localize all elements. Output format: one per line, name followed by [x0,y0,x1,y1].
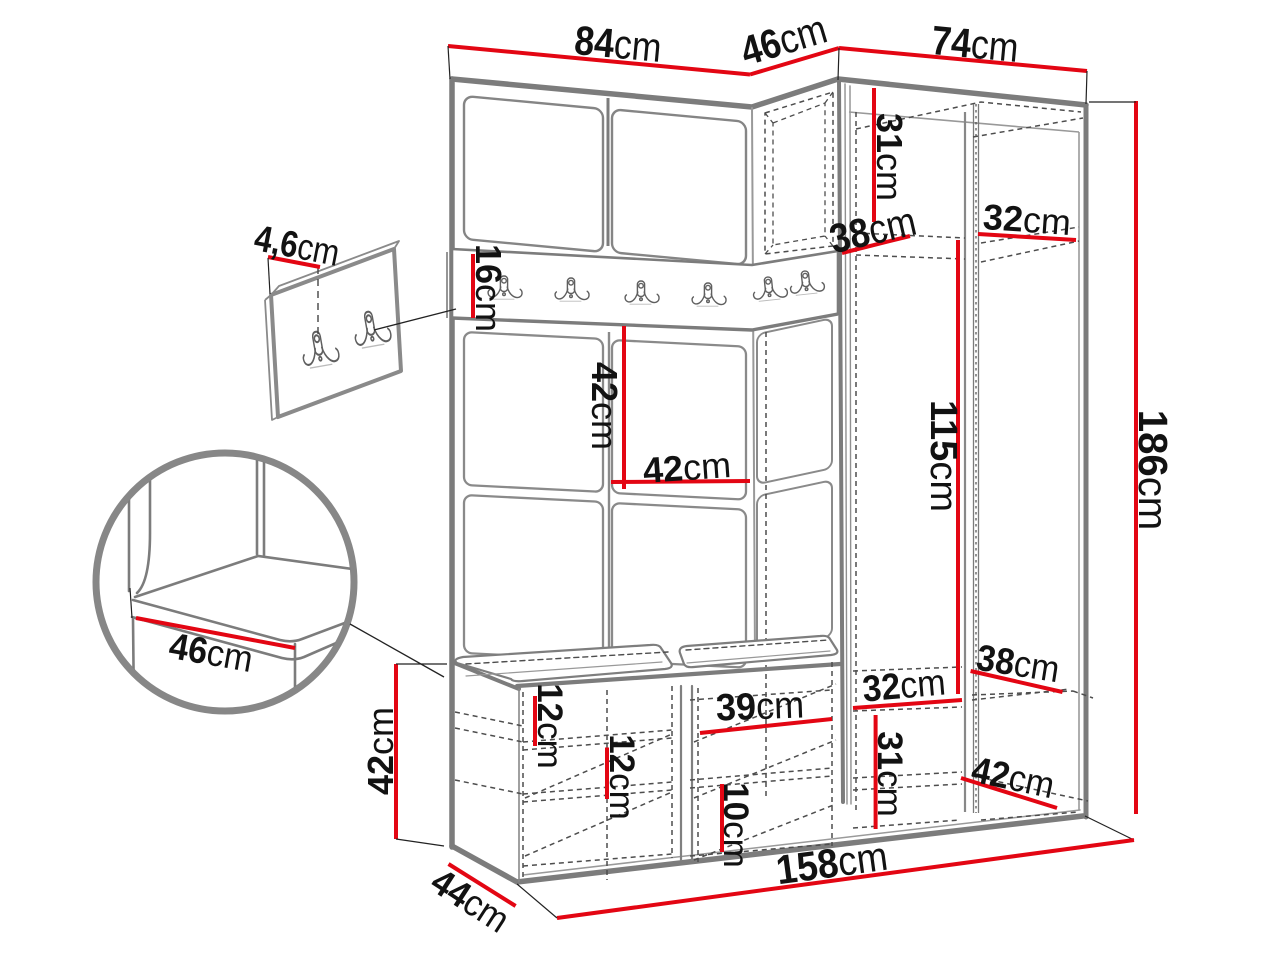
svg-text:42cm: 42cm [642,444,733,491]
svg-text:42cm: 42cm [584,362,625,450]
svg-text:12cm: 12cm [602,734,641,820]
svg-text:10cm: 10cm [716,782,755,868]
svg-text:74cm: 74cm [930,18,1021,72]
svg-text:16cm: 16cm [468,244,509,332]
svg-text:84cm: 84cm [573,18,664,72]
svg-text:12cm: 12cm [530,683,569,769]
svg-text:31cm: 31cm [870,731,909,817]
svg-text:32cm: 32cm [982,196,1073,243]
svg-text:186cm: 186cm [1130,410,1176,531]
svg-text:32cm: 32cm [861,661,948,710]
svg-text:115cm: 115cm [922,400,964,512]
svg-text:42cm: 42cm [360,707,401,795]
svg-text:31cm: 31cm [869,113,910,201]
svg-text:39cm: 39cm [715,683,805,729]
